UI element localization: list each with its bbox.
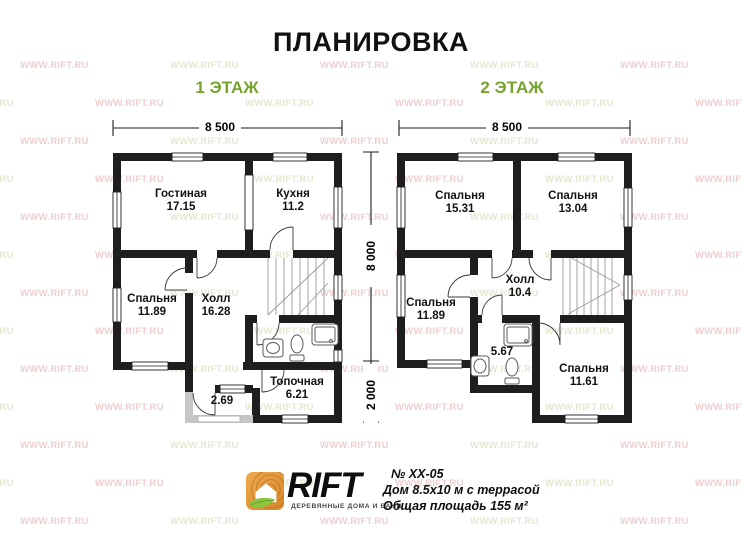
floor-plan-page: WWW.RIFT.RUWWW.RIFT.RUWWW.RIFT.RUWWW.RIF…	[0, 0, 742, 548]
room-label-bath-f2: 5.67	[454, 346, 550, 359]
room-label-hall-f1: Холл16.28	[168, 293, 264, 319]
floor1-width-dimension: 8 500	[199, 120, 241, 134]
floor1-stairs-icon	[268, 258, 328, 315]
room-label-bedroom1-f2: Спальня15.31	[412, 190, 508, 216]
height-dimension-main: 8 000	[364, 225, 378, 287]
room-label-kitchen: Кухня11.2	[245, 188, 341, 214]
room-label-bedroom2-f2: Спальня13.04	[525, 190, 621, 216]
floor2-label: 2 ЭТАЖ	[437, 78, 587, 98]
floor2-width-dimension: 8 500	[486, 120, 528, 134]
room-label-bedroom4-f2: Спальня11.61	[536, 363, 632, 389]
room-label-living: Гостиная17.15	[133, 188, 229, 214]
project-area: Общая площадь 155 м²	[383, 498, 540, 514]
height-dimension-lower: 2 000	[364, 364, 378, 426]
floor2-stairs-icon	[563, 253, 620, 315]
rift-logo-icon	[246, 472, 284, 510]
project-number: № ХХ-05	[383, 466, 540, 482]
room-label-hall-f2: Холл10.4	[472, 274, 568, 300]
project-house: Дом 8.5х10 м с террасой	[383, 482, 540, 498]
page-title: ПЛАНИРОВКА	[0, 27, 742, 58]
room-label-bedroom3-f2: Спальня11.89	[383, 297, 479, 323]
floor1-bathroom-fixtures	[263, 324, 338, 361]
rift-brand-text: RIFT	[287, 466, 361, 506]
footer: RIFT ДЕРЕВЯННЫЕ ДОМА И БАНИ № ХХ-05 Дом …	[0, 460, 742, 530]
project-info: № ХХ-05 Дом 8.5х10 м с террасой Общая пл…	[383, 466, 540, 514]
floor1-label: 1 ЭТАЖ	[152, 78, 302, 98]
room-label-entry: 2.69	[174, 395, 270, 408]
